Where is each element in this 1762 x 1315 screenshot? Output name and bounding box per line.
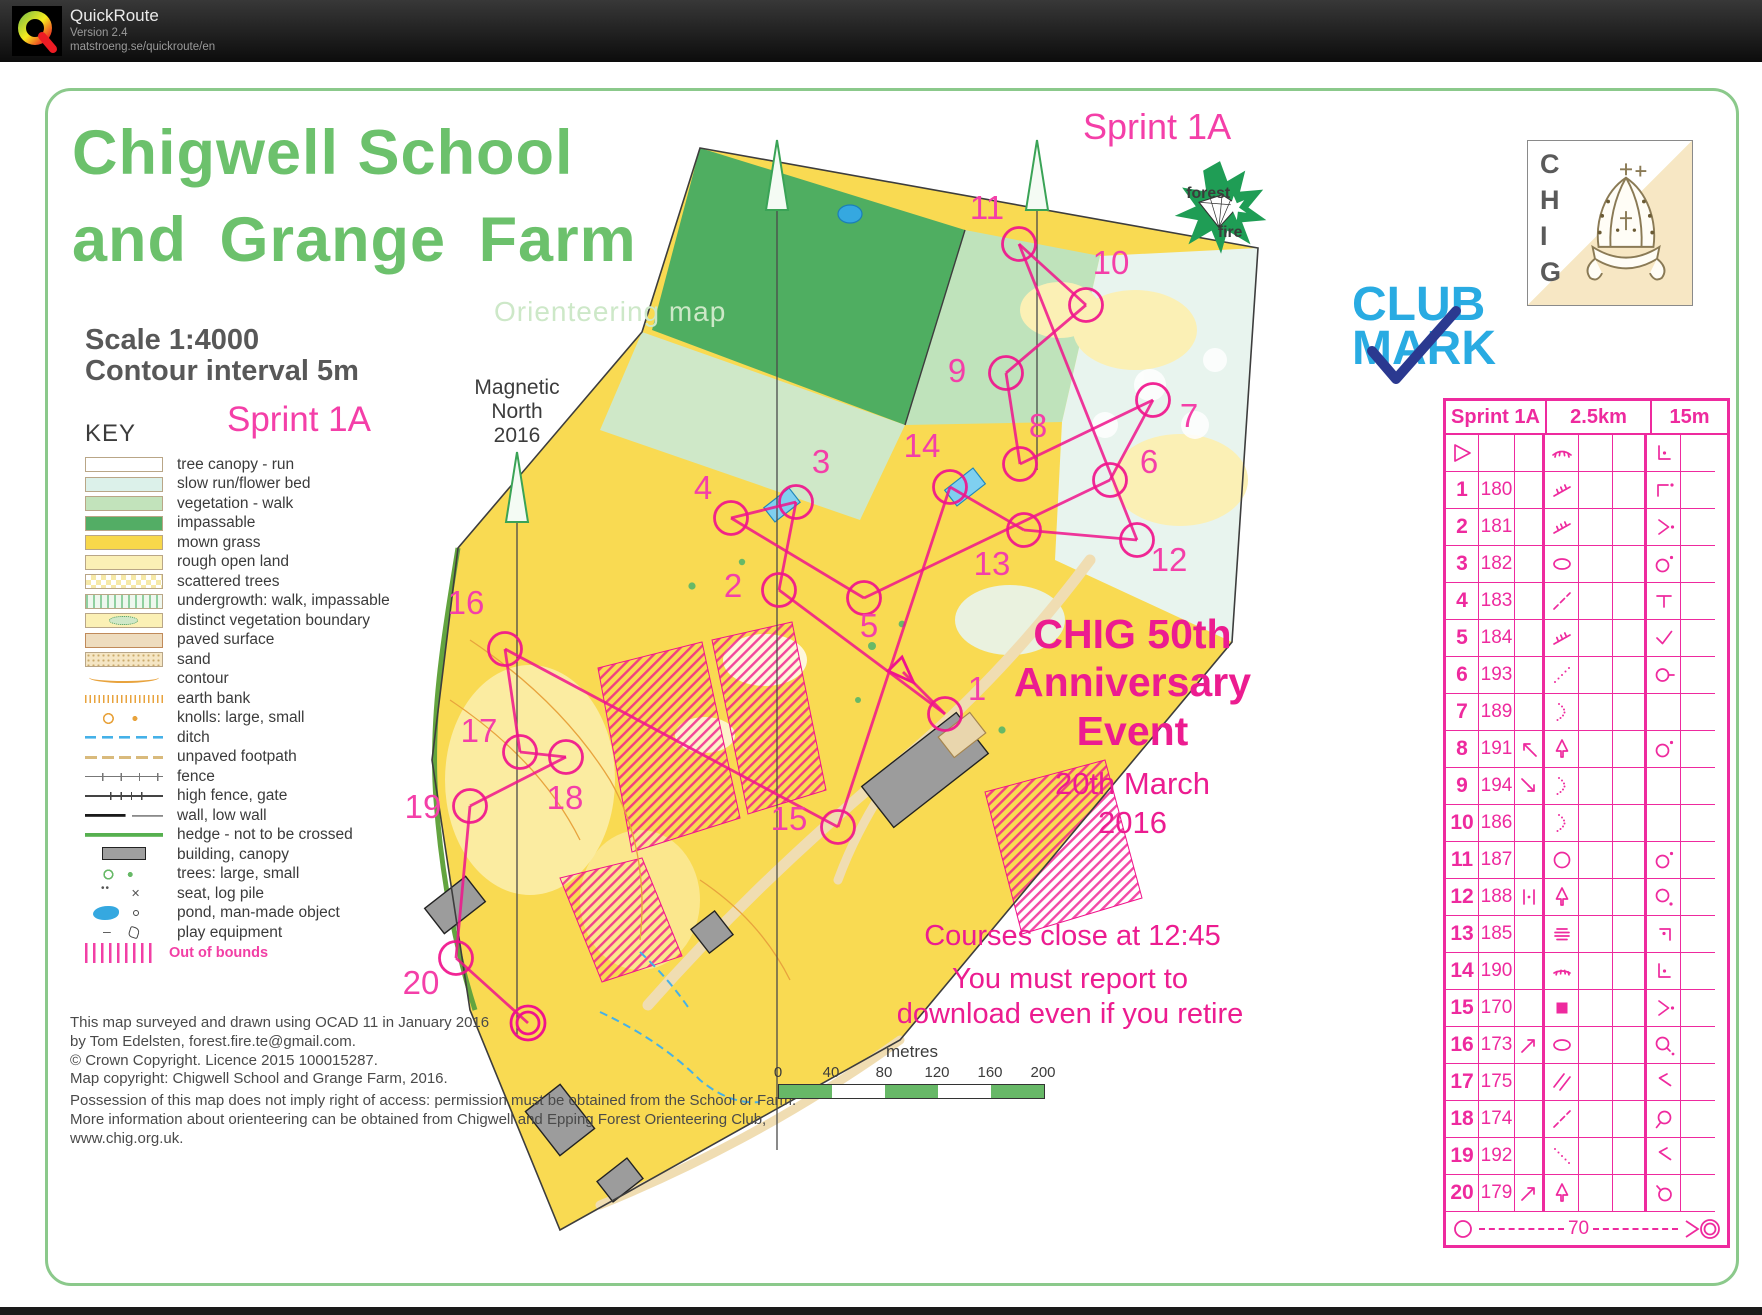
col-number: 19 (1446, 1138, 1479, 1175)
col-which (1515, 1064, 1545, 1101)
col-other (1681, 805, 1715, 842)
legend-item: vegetation - walk (85, 494, 445, 514)
legend-item: impassable (85, 514, 445, 534)
map-title-line2: and Grange Farm (72, 197, 637, 284)
col-feature (1545, 1027, 1579, 1064)
col-number: 6 (1446, 657, 1479, 694)
col-which (1515, 953, 1545, 990)
col-feature (1545, 916, 1579, 953)
col-location (1647, 472, 1681, 509)
col-appearance (1579, 768, 1613, 805)
legend-item: scattered trees (85, 572, 445, 592)
col-appearance (1579, 694, 1613, 731)
col-number: 20 (1446, 1175, 1479, 1212)
desc-row: 20179 (1446, 1175, 1727, 1212)
circle-dot-ne-icon (1652, 737, 1676, 761)
col-dimensions (1613, 583, 1647, 620)
desc-row: 5184 (1446, 620, 1727, 657)
col-code: 188 (1479, 879, 1515, 916)
legend-label: undergrowth: walk, impassable (177, 592, 390, 610)
out-of-bounds-item: Out of bounds (85, 943, 268, 963)
forest-fire-logo: forest fire (1165, 158, 1275, 258)
quickroute-window: { "app": {"name": "QuickRoute", "version… (0, 0, 1762, 1315)
desc-row: 15170 (1446, 990, 1727, 1027)
circle-dot-ne-icon (1652, 552, 1676, 576)
legend-label: contour (177, 670, 229, 688)
col-dimensions (1613, 472, 1647, 509)
col-which (1515, 1027, 1545, 1064)
col-other (1681, 990, 1715, 1027)
route-dash (1479, 1228, 1564, 1230)
col-number: 11 (1446, 842, 1479, 879)
mown-swatch (85, 535, 163, 550)
desc-row: 10186 (1446, 805, 1727, 842)
col-appearance (1579, 731, 1613, 768)
legend-item: sand (85, 650, 445, 670)
col-code (1479, 435, 1515, 472)
col-location (1647, 583, 1681, 620)
col-feature (1545, 620, 1579, 657)
desc-row: 2181 (1446, 509, 1727, 546)
col-code: 181 (1479, 509, 1515, 546)
col-number: 1 (1446, 472, 1479, 509)
legend-item: mown grass (85, 533, 445, 553)
veg-boundary-icon (1550, 441, 1574, 465)
col-which (1515, 805, 1545, 842)
col-which (1515, 1101, 1545, 1138)
col-appearance (1579, 1101, 1613, 1138)
desc-row: 7189 (1446, 694, 1727, 731)
dotted-curve-icon (1550, 811, 1574, 835)
control-descriptions-header: Sprint 1A 2.5km 15m (1446, 401, 1727, 435)
finish-row: 70 (1446, 1212, 1727, 1245)
map-title: Chigwell School and Grange Farm (72, 110, 637, 284)
desc-row: 13185 (1446, 916, 1727, 953)
scale-tick: 120 (924, 1064, 949, 1081)
impassable-swatch (85, 516, 163, 531)
col-dimensions (1613, 768, 1647, 805)
start-icon (1450, 441, 1474, 465)
col-number: 14 (1446, 953, 1479, 990)
slowrun-swatch (85, 477, 163, 492)
map-scale: Scale 1:4000 (85, 326, 359, 355)
col-other (1681, 1027, 1715, 1064)
scale-segment (885, 1085, 938, 1098)
col-code: 175 (1479, 1064, 1515, 1101)
canopy-swatch (85, 457, 163, 472)
clubmark-logo: CLUB MARK (1352, 283, 1527, 393)
col-dimensions (1613, 953, 1647, 990)
circle-icon (1550, 848, 1574, 872)
col-feature (1545, 694, 1579, 731)
col-dimensions (1613, 731, 1647, 768)
legend-label: ditch (177, 729, 210, 747)
col-feature (1545, 1101, 1579, 1138)
control-description-rows: 1180218131824183518461937189819191941018… (1446, 435, 1727, 1212)
legend-item: unpaved footpath (85, 748, 445, 768)
col-location (1647, 620, 1681, 657)
col-other (1681, 435, 1715, 472)
col-other (1681, 657, 1715, 694)
col-other (1681, 1101, 1715, 1138)
legend-label: paved surface (177, 631, 274, 649)
building-swatch (85, 847, 163, 862)
col-code: 180 (1479, 472, 1515, 509)
col-which (1515, 546, 1545, 583)
course-name: Sprint 1A (1446, 401, 1547, 435)
col-feature (1545, 1175, 1579, 1212)
legend-item: trees: large, small (85, 865, 445, 885)
scale-bar-ticks: 04080120160200 (778, 1064, 1046, 1084)
col-feature (1545, 509, 1579, 546)
col-appearance (1579, 805, 1613, 842)
col-other (1681, 694, 1715, 731)
col-number: 2 (1446, 509, 1479, 546)
event-date: 20th March 2016 (985, 765, 1280, 843)
dashed-line-icon (1550, 1107, 1574, 1131)
col-other (1681, 509, 1715, 546)
filled-square-icon (1550, 996, 1574, 1020)
col-other (1681, 768, 1715, 805)
legend-item: undergrowth: walk, impassable (85, 592, 445, 612)
col-dimensions (1613, 657, 1647, 694)
tree-icon (1550, 885, 1574, 909)
circle-tail-nw-icon (1652, 1181, 1676, 1205)
col-location (1647, 694, 1681, 731)
desc-row: 4183 (1446, 583, 1727, 620)
scale-segment (779, 1085, 832, 1098)
legend-label: impassable (177, 514, 255, 532)
col-which (1515, 435, 1545, 472)
col-appearance (1579, 990, 1613, 1027)
col-code: 182 (1479, 546, 1515, 583)
pond-swatch (85, 906, 163, 921)
sand-swatch (85, 652, 163, 667)
col-appearance (1579, 1175, 1613, 1212)
map-title-line1: Chigwell School (72, 110, 637, 197)
app-title: QuickRoute (70, 6, 159, 26)
legend-item: knolls: large, small (85, 709, 445, 729)
col-appearance (1579, 472, 1613, 509)
scale-segment (991, 1085, 1044, 1098)
earth-bank-icon (1550, 515, 1574, 539)
col-number (1446, 435, 1479, 472)
credits-block2: Possession of this map does not imply ri… (70, 1092, 796, 1148)
course-label-top: Sprint 1A (1083, 106, 1231, 148)
route-dash (1593, 1228, 1678, 1230)
col-appearance (1579, 657, 1613, 694)
col-location (1647, 657, 1681, 694)
legend-label: play equipment (177, 924, 282, 942)
col-which (1515, 1175, 1545, 1212)
desc-row: 18174 (1446, 1101, 1727, 1138)
col-dimensions (1613, 694, 1647, 731)
rough-swatch (85, 555, 163, 570)
tree-icon (1550, 1181, 1574, 1205)
legend-item: ditch (85, 728, 445, 748)
col-number: 16 (1446, 1027, 1479, 1064)
last-control-icon (1451, 1217, 1475, 1241)
tee-icon (1652, 589, 1676, 613)
dashed-line-icon (1550, 589, 1574, 613)
col-number: 7 (1446, 694, 1479, 731)
col-which (1515, 620, 1545, 657)
oval-icon (1550, 1033, 1574, 1057)
col-code: 183 (1479, 583, 1515, 620)
col-dimensions (1613, 1101, 1647, 1138)
legend-label: unpaved footpath (177, 748, 297, 766)
col-code: 190 (1479, 953, 1515, 990)
legend-label: hedge - not to be crossed (177, 826, 353, 844)
scale-tick: 160 (977, 1064, 1002, 1081)
col-location (1647, 768, 1681, 805)
steps-icon (1550, 922, 1574, 946)
report-notice: You must report to download even if you … (845, 962, 1295, 1033)
col-feature (1545, 731, 1579, 768)
col-which (1515, 694, 1545, 731)
col-feature (1545, 657, 1579, 694)
col-location (1647, 990, 1681, 1027)
play-swatch (85, 925, 163, 940)
control-descriptions: Sprint 1A 2.5km 15m 11802181318241835184… (1443, 398, 1730, 1248)
col-location (1647, 435, 1681, 472)
dotted-curve-icon (1550, 774, 1574, 798)
scattered-swatch (85, 574, 163, 589)
magnetic-north-label: Magnetic North 2016 (453, 376, 581, 448)
col-location (1647, 1175, 1681, 1212)
legend-label: vegetation - walk (177, 495, 293, 513)
scale-tick: 80 (876, 1064, 893, 1081)
arrow-ne-icon (1517, 1181, 1541, 1205)
map-subtitle: Orienteering map (494, 296, 726, 328)
col-dimensions (1613, 1138, 1647, 1175)
desc-row: 8191 (1446, 731, 1727, 768)
finish-icon (1682, 1217, 1722, 1241)
legend-label: earth bank (177, 690, 250, 708)
seat-swatch (85, 886, 163, 901)
chig-letters: CHIG (1540, 147, 1561, 291)
scale-bar: metres 04080120160200 (778, 1042, 1046, 1099)
earth-bank-icon (1550, 626, 1574, 650)
out-of-bounds-swatch (85, 943, 153, 963)
col-code: 185 (1479, 916, 1515, 953)
col-other (1681, 472, 1715, 509)
col-which (1515, 472, 1545, 509)
legend-item: building, canopy (85, 845, 445, 865)
col-feature (1545, 805, 1579, 842)
col-dimensions (1613, 509, 1647, 546)
out-of-bounds-label: Out of bounds (169, 945, 268, 961)
col-location (1647, 953, 1681, 990)
desc-row: 17175 (1446, 1064, 1727, 1101)
legend-label: sand (177, 651, 211, 669)
trees-swatch (85, 867, 163, 882)
desc-row: 19192 (1446, 1138, 1727, 1175)
col-other (1681, 1138, 1715, 1175)
col-feature (1545, 546, 1579, 583)
desc-row: 6193 (1446, 657, 1727, 694)
col-feature (1545, 583, 1579, 620)
col-feature (1545, 879, 1579, 916)
chevron-e-dot-icon (1652, 515, 1676, 539)
col-appearance (1579, 546, 1613, 583)
col-code: 189 (1479, 694, 1515, 731)
scale-segment (938, 1085, 991, 1098)
footpath-swatch (85, 750, 163, 765)
col-which (1515, 842, 1545, 879)
credits-block1: This map surveyed and drawn using OCAD 1… (70, 1014, 489, 1089)
col-appearance (1579, 509, 1613, 546)
desc-row: 14190 (1446, 953, 1727, 990)
col-other (1681, 953, 1715, 990)
legend-item: tree canopy - run (85, 455, 445, 475)
app-version: Version 2.4 (70, 27, 128, 39)
map-contour-interval: Contour interval 5m (85, 357, 359, 386)
scale-segment (832, 1085, 885, 1098)
col-feature (1545, 435, 1579, 472)
col-appearance (1579, 1064, 1613, 1101)
window-bottom-edge (0, 1307, 1762, 1315)
app-url: matstroeng.se/quickroute/en (70, 41, 215, 53)
legend-item: seat, log pile (85, 884, 445, 904)
col-code: 191 (1479, 731, 1515, 768)
col-code: 187 (1479, 842, 1515, 879)
desc-row: 9194 (1446, 768, 1727, 805)
col-dimensions (1613, 1175, 1647, 1212)
wall-swatch (85, 808, 163, 823)
col-code: 184 (1479, 620, 1515, 657)
col-other (1681, 1175, 1715, 1212)
col-dimensions (1613, 435, 1647, 472)
event-title: CHIG 50th Anniversary Event (985, 610, 1280, 755)
desc-row: 12188 (1446, 879, 1727, 916)
arrow-se-icon (1517, 774, 1541, 798)
contour-swatch (85, 672, 163, 687)
undergrowth-swatch (85, 594, 163, 609)
col-feature (1545, 953, 1579, 990)
circle-tail-sw-icon (1652, 1107, 1676, 1131)
col-appearance (1579, 842, 1613, 879)
quickroute-logo-icon (12, 6, 62, 56)
col-other (1681, 916, 1715, 953)
col-other (1681, 731, 1715, 768)
col-which (1515, 768, 1545, 805)
col-dimensions (1613, 916, 1647, 953)
legend-label: high fence, gate (177, 787, 287, 805)
legend-item: pond, man-made object (85, 904, 445, 924)
scale-tick: 40 (823, 1064, 840, 1081)
legend-item: slow run/flower bed (85, 475, 445, 495)
col-feature (1545, 990, 1579, 1027)
legend-label: wall, low wall (177, 807, 267, 825)
legend-label: trees: large, small (177, 865, 299, 883)
legend-label: rough open land (177, 553, 289, 571)
legend-item: paved surface (85, 631, 445, 651)
col-dimensions (1613, 1027, 1647, 1064)
desc-row: 11187 (1446, 842, 1727, 879)
course-climb: 15m (1652, 401, 1727, 435)
col-location (1647, 842, 1681, 879)
col-code: 179 (1479, 1175, 1515, 1212)
col-appearance (1579, 583, 1613, 620)
corner-ne-dot-icon (1652, 922, 1676, 946)
between-icon (1517, 885, 1541, 909)
fire-text: fire (1218, 224, 1243, 241)
corner-l-dot-icon (1652, 441, 1676, 465)
col-code: 173 (1479, 1027, 1515, 1064)
col-number: 3 (1446, 546, 1479, 583)
col-location (1647, 1101, 1681, 1138)
circle-dot-se-icon (1652, 885, 1676, 909)
col-location (1647, 1027, 1681, 1064)
col-other (1681, 583, 1715, 620)
key-heading: KEY (85, 420, 136, 448)
col-dimensions (1613, 842, 1647, 879)
col-feature (1545, 842, 1579, 879)
col-other (1681, 879, 1715, 916)
scale-bar-unit: metres (778, 1042, 1046, 1062)
col-which (1515, 1138, 1545, 1175)
legend-label: knolls: large, small (177, 709, 305, 727)
arrow-ne-icon (1517, 1033, 1541, 1057)
col-number: 13 (1446, 916, 1479, 953)
col-feature (1545, 768, 1579, 805)
circle-dot-ne-icon (1652, 848, 1676, 872)
legend-item: wall, low wall (85, 806, 445, 826)
legend-label: scattered trees (177, 573, 280, 591)
col-number: 5 (1446, 620, 1479, 657)
col-dimensions (1613, 990, 1647, 1027)
col-dimensions (1613, 879, 1647, 916)
legend-label: fence (177, 768, 215, 786)
legend-label: pond, man-made object (177, 904, 340, 922)
col-feature (1545, 472, 1579, 509)
col-location (1647, 916, 1681, 953)
desc-row: 16173 (1446, 1027, 1727, 1064)
col-code: 174 (1479, 1101, 1515, 1138)
desc-row: 1180 (1446, 472, 1727, 509)
col-location (1647, 546, 1681, 583)
dotted-diag-se-icon (1550, 1144, 1574, 1168)
legend-item: rough open land (85, 553, 445, 573)
col-appearance (1579, 1138, 1613, 1175)
chevron-e-dot-icon (1652, 996, 1676, 1020)
col-number: 8 (1446, 731, 1479, 768)
arrow-nw-icon (1517, 737, 1541, 761)
bend-nw-icon (1652, 1144, 1676, 1168)
crossing-icon (1550, 1070, 1574, 1094)
col-number: 10 (1446, 805, 1479, 842)
oval-icon (1550, 552, 1574, 576)
col-which (1515, 879, 1545, 916)
courses-close-notice: Courses close at 12:45 (890, 920, 1255, 953)
col-appearance (1579, 435, 1613, 472)
course-label-left: Sprint 1A (227, 400, 371, 440)
col-which (1515, 509, 1545, 546)
bend-check-icon (1652, 626, 1676, 650)
col-feature (1545, 1064, 1579, 1101)
legend-item: high fence, gate (85, 787, 445, 807)
earthbank-swatch (85, 691, 163, 706)
circle-tail-dot-se-icon (1652, 1033, 1676, 1057)
legend-label: tree canopy - run (177, 456, 294, 474)
col-location (1647, 1064, 1681, 1101)
key-legend: tree canopy - runslow run/flower bedvege… (85, 455, 445, 943)
distinctveg-swatch (85, 613, 163, 628)
col-which (1515, 731, 1545, 768)
highfence-swatch (85, 789, 163, 804)
scale-tick: 200 (1030, 1064, 1055, 1081)
